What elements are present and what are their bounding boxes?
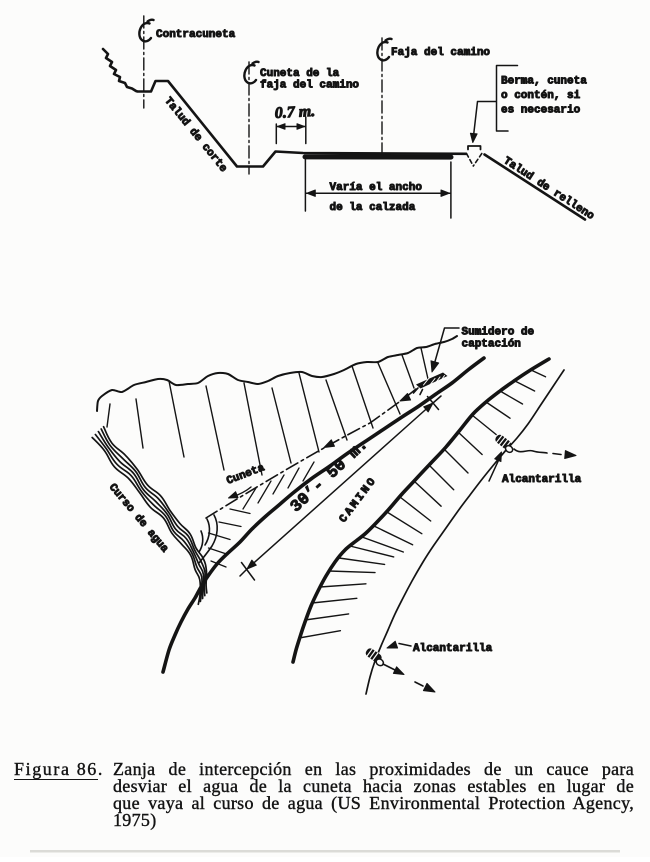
- svg-text:captación: captación: [462, 339, 521, 351]
- svg-text:Alcantarilla: Alcantarilla: [413, 643, 493, 655]
- svg-text:Sumidero de: Sumidero de: [462, 327, 535, 339]
- svg-text:Alcantarilla: Alcantarilla: [502, 474, 582, 486]
- svg-text:o contén, si: o contén, si: [501, 90, 581, 102]
- svg-text:Varía el ancho: Varía el ancho: [330, 182, 423, 194]
- svg-text:Faja del camino: Faja del camino: [391, 47, 490, 59]
- svg-text:Berma, cuneta: Berma, cuneta: [501, 76, 587, 88]
- svg-text:Contracuneta: Contracuneta: [156, 29, 236, 41]
- svg-text:Cuneta de la: Cuneta de la: [260, 68, 340, 80]
- svg-text:de la calzada: de la calzada: [330, 202, 416, 214]
- svg-text:es necesario: es necesario: [501, 105, 581, 117]
- svg-text:faja del camino: faja del camino: [260, 80, 359, 92]
- svg-text:0.7 m.: 0.7 m.: [274, 103, 315, 122]
